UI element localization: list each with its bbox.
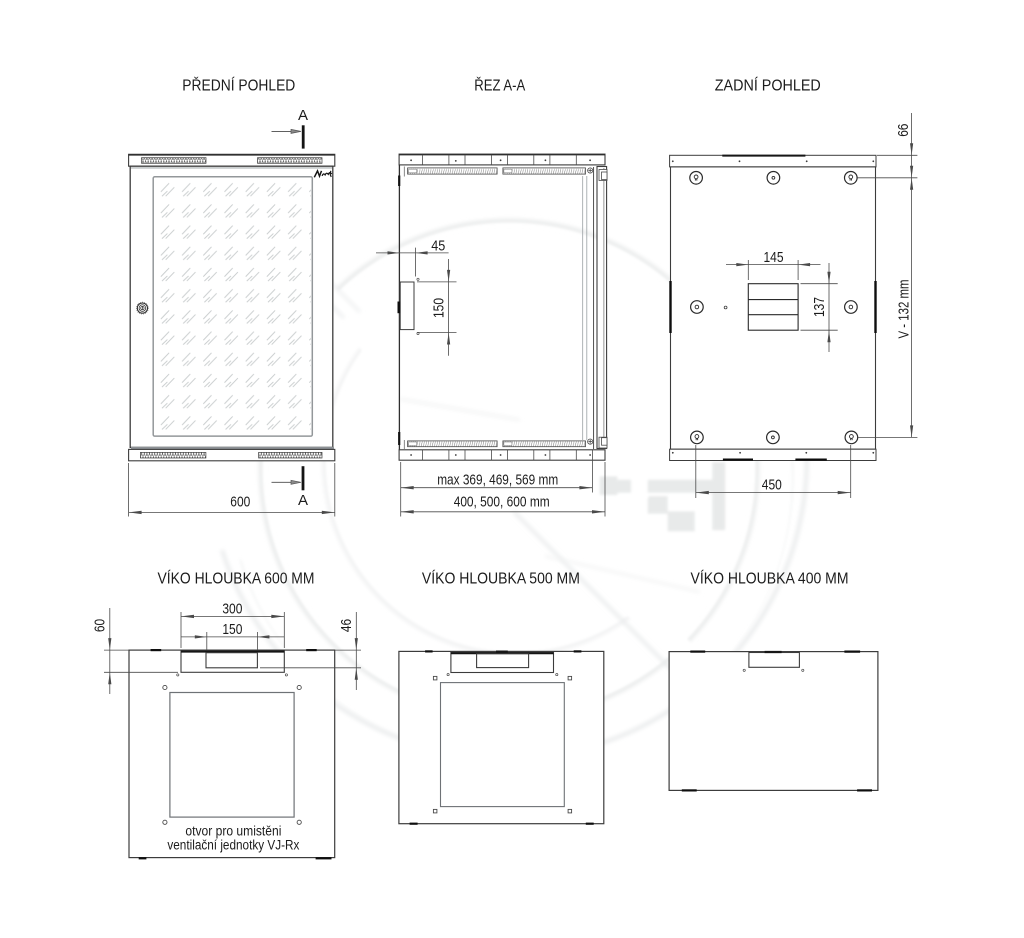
svg-text:ZADNÍ POHLED: ZADNÍ POHLED (715, 77, 821, 94)
svg-text:60: 60 (91, 619, 108, 632)
svg-text:otvor pro umistěni: otvor pro umistěni (185, 823, 281, 838)
svg-text:400, 500, 600 mm: 400, 500, 600 mm (454, 494, 550, 511)
svg-text:145: 145 (764, 249, 784, 266)
svg-text:600: 600 (230, 494, 250, 511)
svg-text:A: A (298, 107, 308, 124)
svg-text:max 369, 469, 569 mm: max 369, 469, 569 mm (437, 472, 558, 489)
svg-text:45: 45 (431, 237, 445, 254)
svg-text:VÍKO HLOUBKA 500 MM: VÍKO HLOUBKA 500 MM (422, 570, 580, 587)
svg-text:137: 137 (811, 297, 828, 317)
svg-text:150: 150 (222, 621, 242, 638)
svg-text:A: A (298, 492, 308, 509)
svg-text:150: 150 (431, 298, 448, 318)
svg-text:V - 132 mm: V - 132 mm (895, 280, 912, 339)
svg-text:ventilační jednotky VJ-Rx: ventilační jednotky VJ-Rx (167, 838, 299, 853)
svg-text:VÍKO HLOUBKA 400 MM: VÍKO HLOUBKA 400 MM (691, 570, 849, 587)
svg-text:300: 300 (222, 600, 242, 617)
svg-text:VÍKO HLOUBKA 600 MM: VÍKO HLOUBKA 600 MM (158, 570, 315, 587)
svg-text:ŘEZ A-A: ŘEZ A-A (474, 77, 526, 94)
svg-text:450: 450 (762, 477, 782, 494)
svg-text:66: 66 (895, 124, 912, 137)
svg-text:PŘEDNÍ POHLED: PŘEDNÍ POHLED (182, 77, 295, 94)
svg-text:46: 46 (338, 619, 355, 632)
